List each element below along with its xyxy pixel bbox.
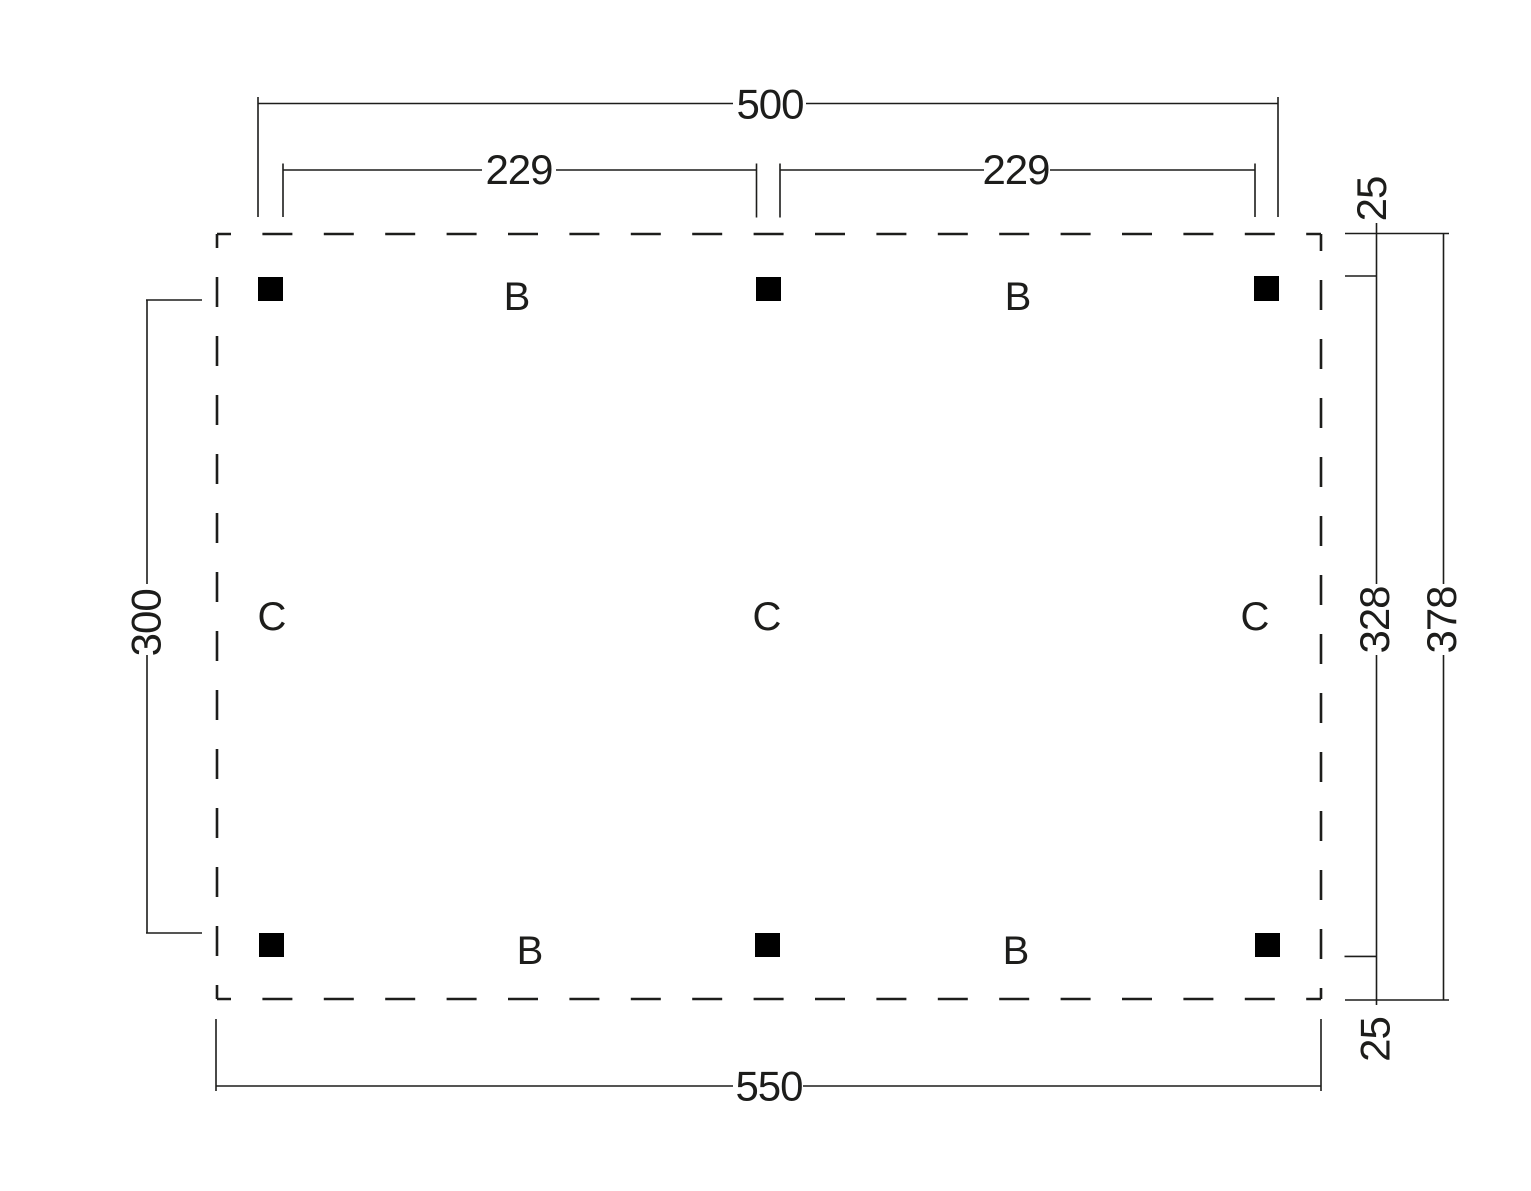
svg-text:25: 25 [1352,1017,1399,1062]
svg-text:500: 500 [736,81,803,128]
svg-text:B: B [517,929,544,973]
svg-text:B: B [1005,275,1032,319]
svg-text:300: 300 [123,589,170,656]
svg-text:229: 229 [982,146,1049,193]
svg-text:C: C [258,595,287,639]
svg-text:C: C [1241,595,1270,639]
svg-text:229: 229 [485,146,552,193]
svg-text:378: 378 [1418,586,1465,653]
svg-text:328: 328 [1351,586,1398,653]
svg-text:25: 25 [1348,177,1395,222]
svg-text:B: B [1003,929,1030,973]
svg-text:B: B [504,275,531,319]
svg-text:C: C [753,595,782,639]
svg-text:550: 550 [735,1063,802,1110]
